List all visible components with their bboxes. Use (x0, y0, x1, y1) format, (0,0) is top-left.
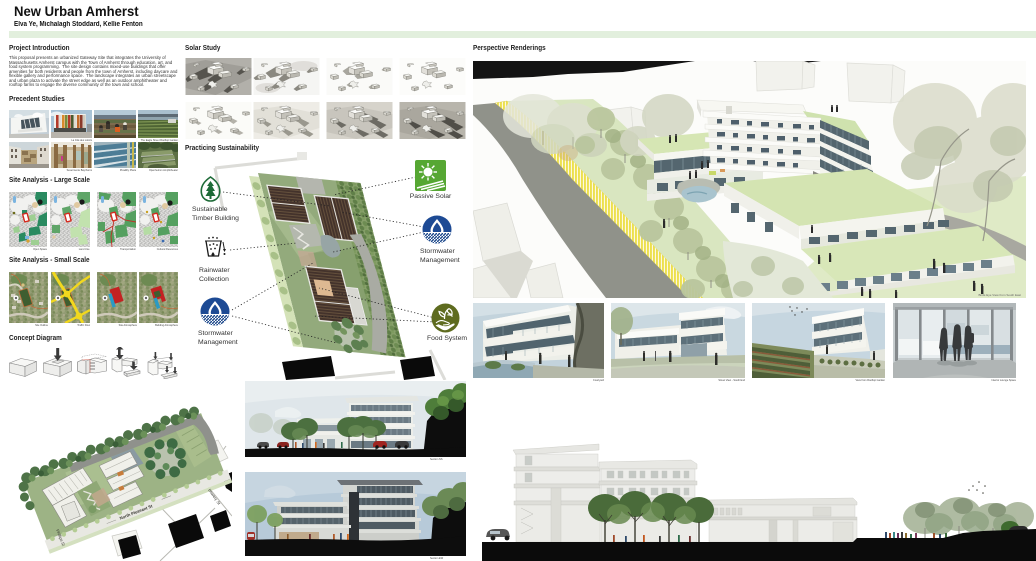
svg-text:Bowery St: Bowery St (207, 488, 222, 507)
svg-text:Birds Eye View from South East: Birds Eye View from South East (979, 293, 1022, 297)
